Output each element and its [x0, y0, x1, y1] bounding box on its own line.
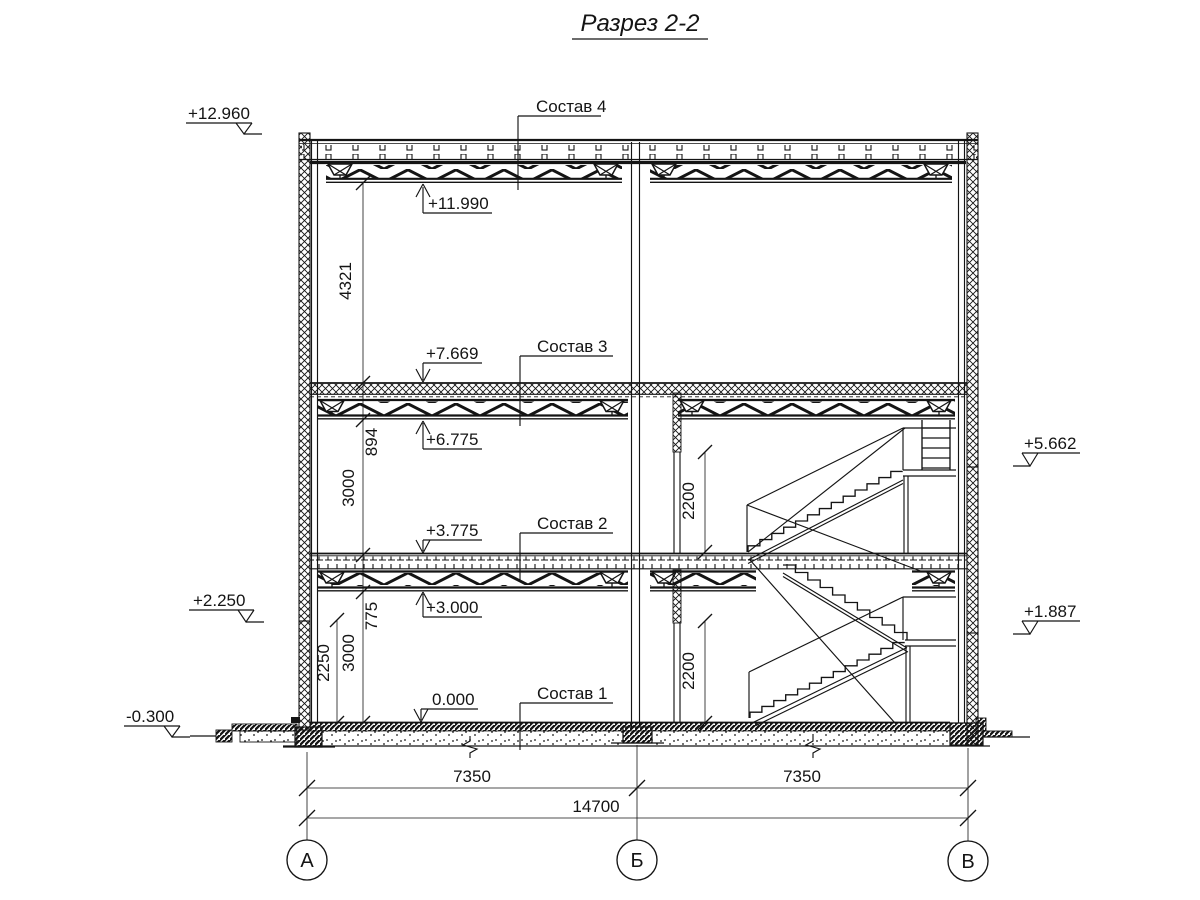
column-axis-b [632, 142, 640, 727]
column-axis-v [959, 140, 965, 723]
dim-3000-lower: 3000 [339, 634, 358, 672]
roof-truss-web-right-bay [650, 165, 952, 178]
elevation-arrow-icon [416, 363, 482, 382]
elevation-arrow-icon [414, 709, 478, 722]
elevation-mark-7669: +7.669 [416, 344, 482, 382]
dimension-line-total: 14700 [299, 797, 976, 826]
axis-bubble-b: Б [617, 840, 657, 880]
floor-deck-ribs [310, 557, 967, 569]
elevation-label: +2.250 [193, 591, 245, 610]
elevation-mark-0000: 0.000 [414, 690, 478, 722]
axis-letter-v: В [961, 851, 974, 873]
elevation-arrow-icon [186, 123, 262, 134]
ground-floor-slab [283, 723, 950, 759]
layer-label-text: Состав 2 [537, 514, 608, 533]
section-drawing-sheet: Разрез 2-2 [0, 0, 1200, 900]
roof-access-ladder [922, 420, 950, 470]
axis-extension-lines [307, 745, 968, 841]
roof-truss-web-left-bay [326, 165, 622, 178]
elevation-label: +3.775 [426, 521, 478, 540]
dim-7350-left: 7350 [453, 767, 491, 786]
layer-label-text: Состав 1 [537, 684, 608, 703]
dim-14700: 14700 [572, 797, 619, 816]
dimension-chain-vertical: 4321 894 3000 775 3000 [336, 176, 381, 730]
column-a-baseplate [291, 717, 300, 723]
elevation-label: +7.669 [426, 344, 478, 363]
ground-slab-base-left [322, 731, 623, 746]
foundation-axis-v [950, 723, 983, 745]
page-title: Разрез 2-2 [581, 10, 700, 37]
dim-2250: 2250 [314, 644, 333, 682]
dim-894: 894 [362, 428, 381, 456]
stair-steps-upper [748, 471, 903, 552]
dimension-2200-upper: 2200 [679, 445, 712, 559]
dim-4321: 4321 [336, 262, 355, 300]
stair-steps-ascending [750, 643, 905, 718]
elevation-label: +6.775 [426, 430, 478, 449]
elevation-mark-3000: +3.000 [416, 592, 482, 617]
stair-crossing-flight-line [748, 428, 905, 552]
elevation-mark-1887: +1.887 [1013, 602, 1080, 634]
staircase-upper-flight [747, 428, 956, 572]
floor-truss-web-left-bay [318, 573, 628, 586]
ground-slab-base-right [652, 731, 948, 746]
roof-deck-ribs [302, 145, 976, 159]
dim-7350-right: 7350 [783, 767, 821, 786]
elevation-label: -0.300 [126, 707, 174, 726]
elevation-label: +1.887 [1024, 602, 1076, 621]
elevation-arrow-icon [189, 610, 264, 622]
floor-assembly-7669 [310, 383, 967, 419]
dim-2200-lower: 2200 [679, 652, 698, 690]
layer-label-text: Состав 4 [536, 97, 607, 116]
elevation-label: 0.000 [432, 690, 475, 709]
elevation-arrow-icon [124, 726, 190, 737]
layer-label-text: Состав 3 [537, 337, 608, 356]
building-section-2-2: Разрез 2-2 [0, 0, 1200, 900]
axis-letter-a: А [300, 850, 314, 872]
dimension-2200-lower: 2200 [679, 614, 712, 730]
elevation-mark-6775: +6.775 [416, 421, 482, 449]
floor-truss-web-left-bay [318, 402, 628, 415]
floor-assembly-3775 [310, 554, 967, 591]
axis-letter-b: Б [630, 850, 643, 872]
elevation-mark-12960: +12.960 [186, 104, 262, 134]
dim-3000-upper: 3000 [339, 469, 358, 507]
elevation-mark-3775: +3.775 [416, 521, 482, 553]
elevation-arrow-icon [1013, 453, 1080, 466]
left-wall-panel [299, 133, 310, 730]
elevation-arrow-icon [1013, 621, 1080, 634]
drawing-title: Разрез 2-2 [572, 10, 708, 39]
elevation-label: +5.662 [1024, 434, 1076, 453]
elevation-mark-minus0300: -0.300 [124, 707, 190, 737]
exterior-grade-left [190, 724, 297, 742]
stair-partition-upper [673, 393, 681, 553]
elevation-arrow-icon [416, 540, 482, 553]
elevation-mark-5662: +5.662 [1013, 434, 1080, 466]
elevation-label: +11.990 [428, 194, 489, 213]
floor-slab-crosshatch [310, 384, 967, 395]
elevation-mark-2250: +2.250 [189, 591, 264, 622]
elevation-label: +3.000 [426, 598, 478, 617]
axis-bubble-v: В [948, 841, 988, 881]
elevation-label: +12.960 [188, 104, 250, 123]
right-wall-panel [967, 133, 978, 745]
floor-truss-web-right-bay [678, 402, 955, 415]
dim-775: 775 [362, 602, 381, 630]
dimension-line-spans: 7350 7350 [299, 767, 976, 796]
elevation-mark-11990: +11.990 [416, 184, 492, 213]
axis-bubble-a: А [287, 840, 327, 880]
stair-partition-lower [673, 570, 681, 723]
stair-steps-descending [783, 565, 907, 640]
dim-2200-upper: 2200 [679, 482, 698, 520]
stair-handrail-upper [747, 428, 903, 505]
roof-assembly [299, 140, 978, 182]
stair-crossing-flight-line [750, 560, 895, 723]
